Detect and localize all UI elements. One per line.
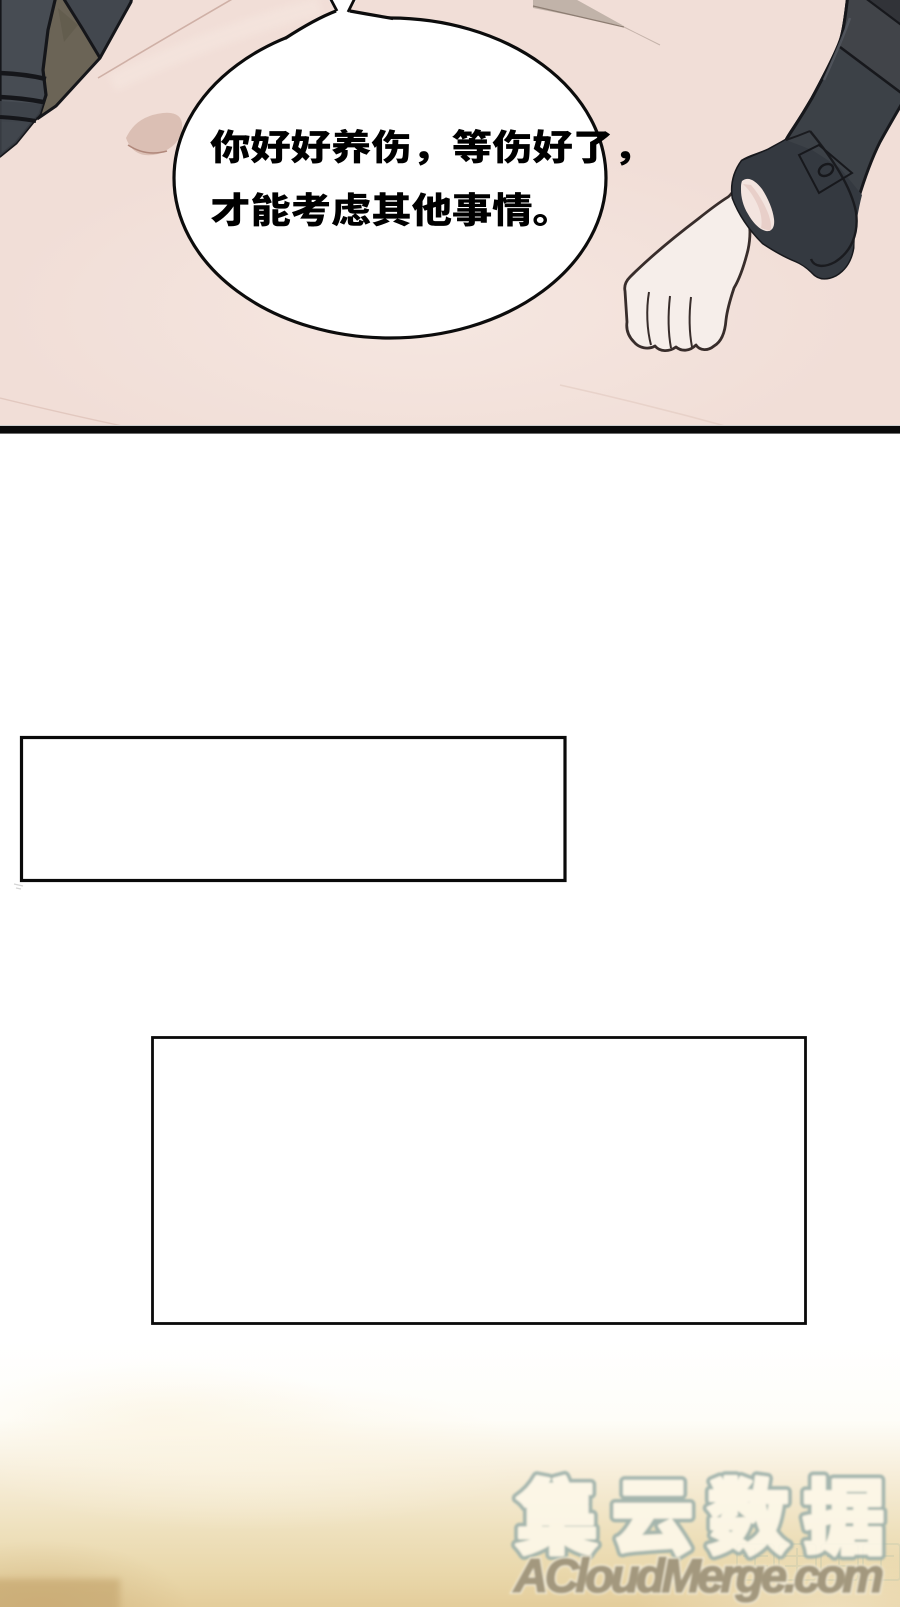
svg-text:ACloudMerge.com: ACloudMerge.com (513, 1549, 884, 1602)
